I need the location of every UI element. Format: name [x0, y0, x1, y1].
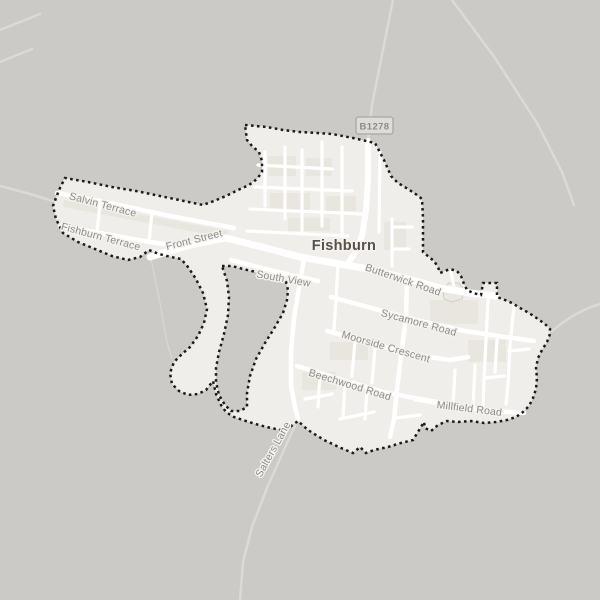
block [270, 193, 310, 210]
block [430, 300, 478, 324]
route-badge: B1278 [356, 117, 393, 134]
route-badge-label: B1278 [360, 122, 390, 133]
map-canvas[interactable]: B1278 Salvin Terrace Fishburn Terrace Fr… [0, 0, 600, 600]
block [288, 218, 330, 231]
map-container: B1278 Salvin Terrace Fishburn Terrace Fr… [0, 0, 600, 600]
place-label-fishburn: Fishburn [312, 238, 376, 254]
